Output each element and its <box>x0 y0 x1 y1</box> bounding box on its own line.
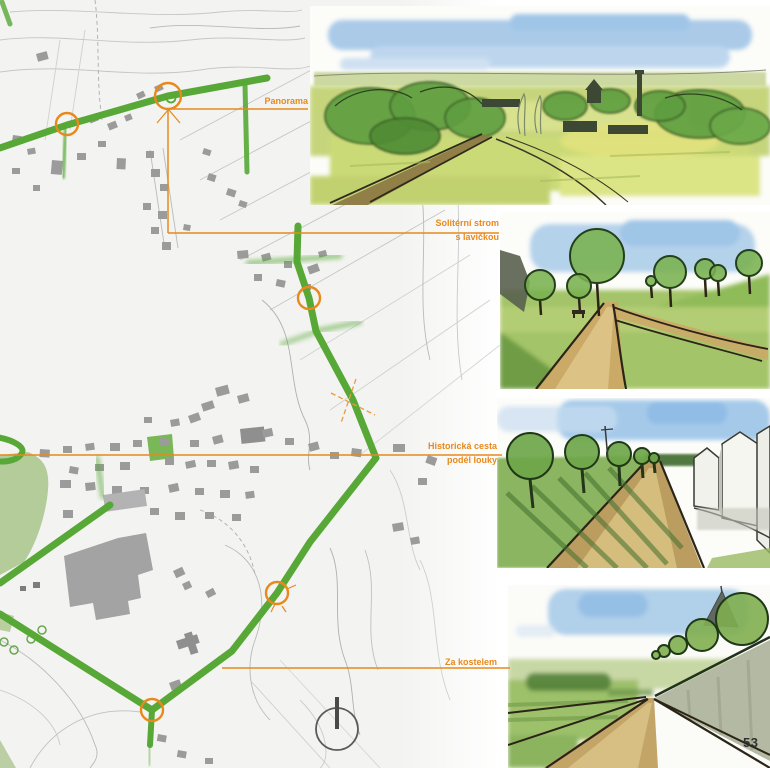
leader-lines <box>0 109 510 668</box>
study-page: { "page": { "number": "53" }, "colors": … <box>0 0 770 768</box>
label-text-line2: s lavičkou <box>435 232 499 242</box>
label-text: Solitérní strom <box>435 218 499 228</box>
label-panorama: Panorama <box>264 96 308 106</box>
annotation-layer <box>0 0 520 768</box>
house-forecourt <box>697 508 770 530</box>
route-marker-west <box>56 113 78 135</box>
label-soliterni-strom: Solitérní strom s lavičkou <box>435 218 499 242</box>
label-text: Historická cesta <box>428 441 497 451</box>
route-marker-north-path <box>298 287 320 309</box>
route-marker-behind-church <box>141 699 163 721</box>
spire-finial <box>721 586 722 593</box>
historic-path-sketch <box>497 398 770 568</box>
label-text-line2: podél louky <box>428 455 497 465</box>
sky-wash <box>530 220 755 272</box>
behind-church-sketch <box>508 585 770 768</box>
crossing-mark <box>331 379 375 423</box>
solitary-tree-symbol <box>167 94 176 103</box>
label-text: Panorama <box>264 96 308 106</box>
solitary-tree-sketch <box>500 212 770 389</box>
marker-ticks <box>157 110 296 612</box>
label-text: Za kostelem <box>445 657 497 667</box>
page-number: 53 <box>743 735 758 750</box>
route-markers <box>56 83 320 721</box>
label-za-kostelem: Za kostelem <box>445 657 497 667</box>
label-historicka-cesta: Historická cesta podél louky <box>428 441 497 465</box>
chimney <box>637 72 642 116</box>
route-marker-meadow-path <box>266 582 288 604</box>
